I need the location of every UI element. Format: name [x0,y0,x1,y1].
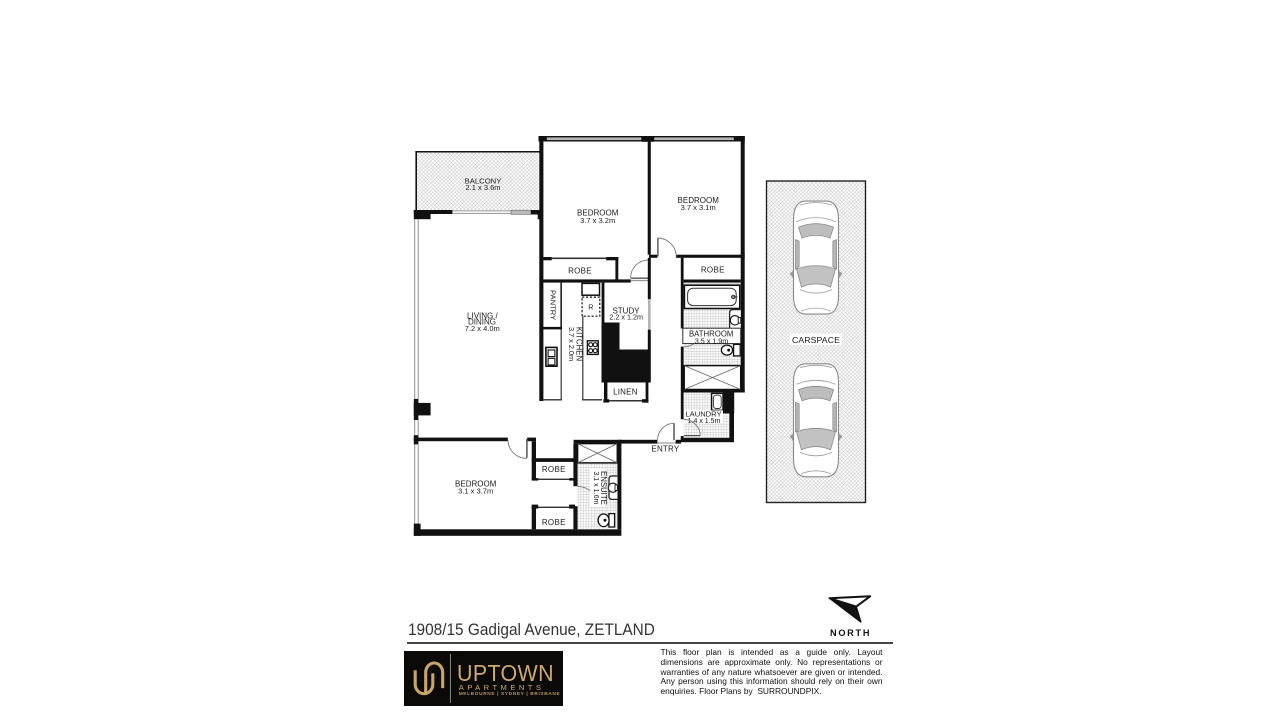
svg-text:2.1 x 3.6m: 2.1 x 3.6m [465,183,500,192]
svg-text:ROBE: ROBE [568,267,592,276]
svg-text:ROBE: ROBE [701,266,725,275]
svg-text:2.2 x 1.2m: 2.2 x 1.2m [609,313,643,322]
svg-text:LINEN: LINEN [613,387,638,396]
svg-text:3.7 x 3.2m: 3.7 x 3.2m [580,216,615,225]
svg-text:ENTRY: ENTRY [651,444,679,453]
svg-text:R: R [588,302,593,311]
svg-text:3.5 x 1.9m: 3.5 x 1.9m [695,336,729,345]
svg-text:3.7 x 2.0m: 3.7 x 2.0m [567,327,576,361]
svg-text:ROBE: ROBE [542,465,566,474]
svg-text:7.2 x 4.0m: 7.2 x 4.0m [465,324,500,333]
svg-text:ROBE: ROBE [542,518,566,527]
svg-text:PANTRY: PANTRY [548,290,557,320]
svg-text:CARSPACE: CARSPACE [792,335,840,345]
svg-text:3.7 x 3.1m: 3.7 x 3.1m [681,203,716,212]
svg-text:3.1 x 1.6m: 3.1 x 1.6m [592,471,600,504]
svg-text:3.1 x 3.7m: 3.1 x 3.7m [458,487,493,496]
svg-text:1.4 x 1.5m: 1.4 x 1.5m [688,418,721,425]
